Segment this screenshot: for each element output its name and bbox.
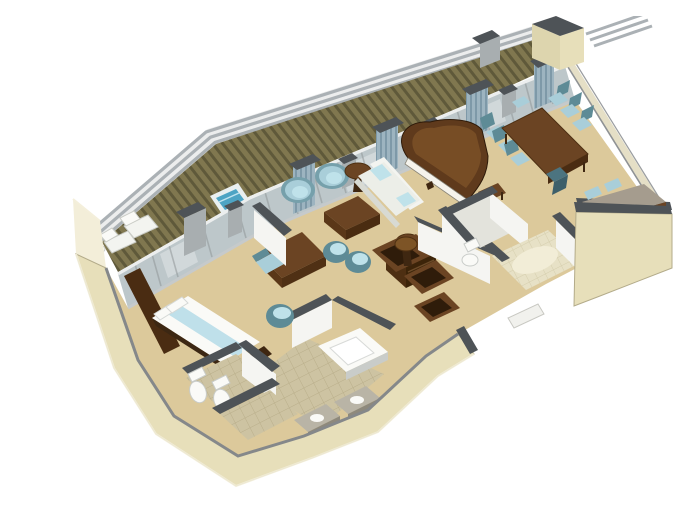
barrel-armchair (315, 163, 349, 189)
barrel-armchair (281, 177, 315, 203)
entrance-door (508, 304, 544, 328)
tub-chair (266, 304, 294, 328)
tub-chair (323, 241, 349, 263)
tub-chair (345, 251, 371, 273)
floorplan-rendering (40, 16, 680, 502)
entry-right-wall (574, 202, 672, 306)
deck-railing-aft-segment (586, 16, 652, 46)
